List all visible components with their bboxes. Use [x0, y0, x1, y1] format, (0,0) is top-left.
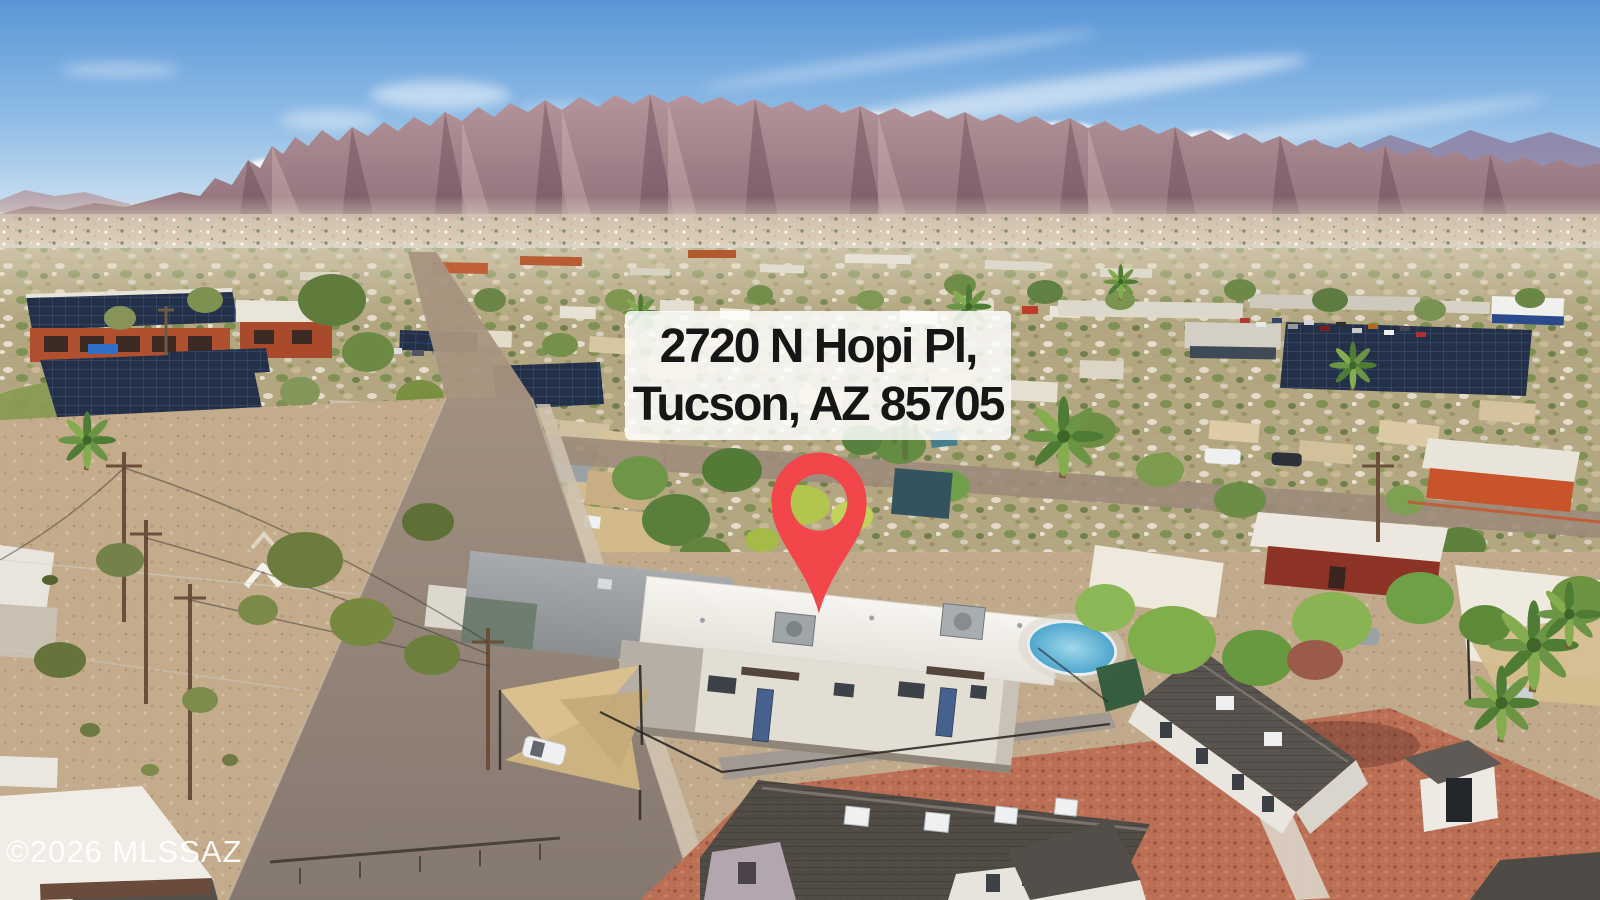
address-line1: 2720 N Hopi Pl,	[660, 318, 977, 376]
aerial-listing-photo: 2720 N Hopi Pl, Tucson, AZ 85705 ©2026 M…	[0, 0, 1600, 900]
red-leaf-tree	[1287, 640, 1343, 680]
address-overlay: 2720 N Hopi Pl, Tucson, AZ 85705	[625, 311, 1011, 440]
blue-awning	[88, 344, 118, 354]
address-line2: Tucson, AZ 85705	[633, 376, 1004, 434]
teal-shed	[891, 468, 953, 519]
location-pin-icon	[760, 448, 878, 618]
watermark: ©2026 MLSSAZ	[6, 834, 242, 870]
